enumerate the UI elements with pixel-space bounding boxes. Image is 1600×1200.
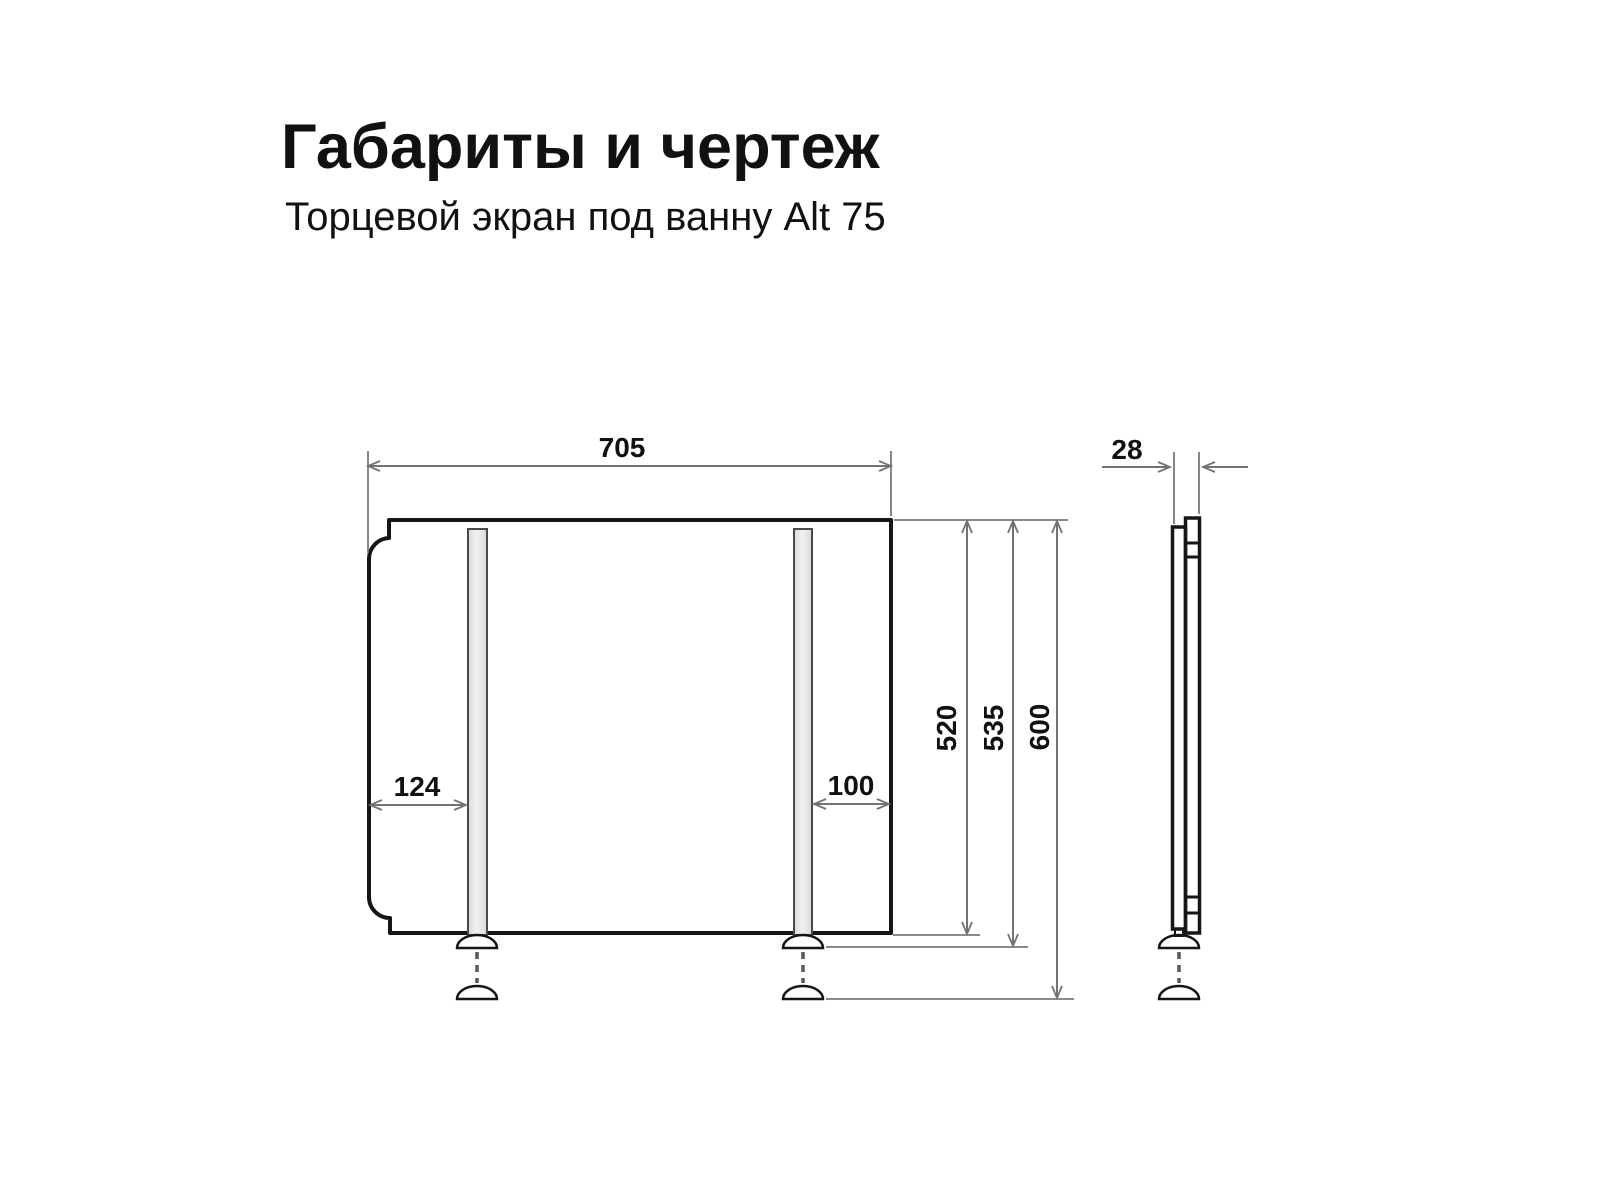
dim-label-600: 600 — [1024, 704, 1055, 751]
dim-panel-height: 520 — [931, 521, 967, 934]
front-left-foot-extended — [457, 986, 497, 999]
dim-label-28: 28 — [1111, 434, 1142, 465]
dim-left-leg-offset: 124 — [370, 771, 466, 805]
front-left-foot — [457, 935, 497, 948]
front-right-foot-extended — [783, 986, 823, 999]
side-foot-extended — [1159, 986, 1199, 999]
dim-label-520: 520 — [931, 705, 962, 752]
dim-thickness: 28 — [1102, 434, 1248, 524]
front-right-foot — [783, 935, 823, 948]
side-panel-profile — [1173, 527, 1186, 929]
dim-height-max: 600 — [1024, 521, 1057, 998]
front-view — [369, 520, 891, 999]
front-left-rail — [468, 529, 487, 935]
dim-height-with-feet: 535 — [978, 521, 1013, 946]
dim-label-100: 100 — [828, 770, 875, 801]
dim-label-124: 124 — [394, 771, 441, 802]
dim-label-705: 705 — [599, 432, 646, 463]
drawing-page: Габариты и чертеж Торцевой экран под ван… — [0, 0, 1600, 1200]
dim-right-leg-offset: 100 — [814, 770, 889, 804]
technical-drawing: 705 124 100 520 — [0, 0, 1600, 1200]
front-right-rail — [794, 529, 812, 935]
side-rail-profile — [1186, 518, 1200, 933]
side-view — [1159, 518, 1200, 999]
dim-label-535: 535 — [978, 705, 1009, 752]
